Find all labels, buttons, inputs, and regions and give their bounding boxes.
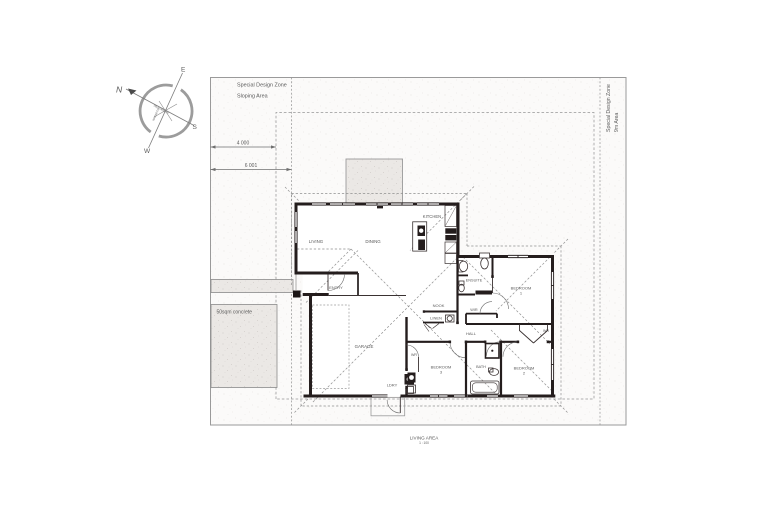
svg-text:WR: WR [411, 353, 417, 357]
svg-text:WIR: WIR [470, 308, 478, 312]
svg-text:DINING: DINING [365, 239, 381, 244]
svg-text:LINEN: LINEN [430, 316, 442, 321]
svg-text:WR: WR [543, 329, 549, 333]
svg-text:W: W [144, 148, 151, 155]
svg-text:LIVING: LIVING [309, 239, 324, 244]
svg-text:HALL: HALL [466, 331, 477, 336]
svg-text:KITCHEN: KITCHEN [423, 214, 441, 219]
svg-text:LIVING AREA: LIVING AREA [410, 436, 440, 441]
svg-text:4 000: 4 000 [237, 141, 250, 147]
svg-text:50sqm concrete: 50sqm concrete [217, 310, 253, 316]
svg-text:NOOK: NOOK [433, 303, 445, 308]
svg-text:LDRY: LDRY [387, 383, 398, 388]
svg-text:S: S [193, 124, 198, 131]
svg-text:E: E [181, 67, 186, 74]
svg-text:GARAGE: GARAGE [355, 344, 374, 349]
svg-text:1 : 100: 1 : 100 [419, 441, 429, 445]
svg-text:Special Design Zone: Special Design Zone [606, 84, 612, 132]
svg-text:ENSUITE: ENSUITE [466, 279, 483, 283]
svg-text:Sloping Area: Sloping Area [237, 94, 268, 100]
svg-text:N: N [116, 85, 123, 95]
svg-text:BATH: BATH [476, 365, 486, 369]
svg-text:Special Design Zone: Special Design Zone [237, 83, 287, 89]
svg-text:6 001: 6 001 [245, 163, 258, 169]
svg-text:9m Area: 9m Area [614, 113, 620, 132]
svg-text:ENTRY: ENTRY [329, 285, 343, 290]
